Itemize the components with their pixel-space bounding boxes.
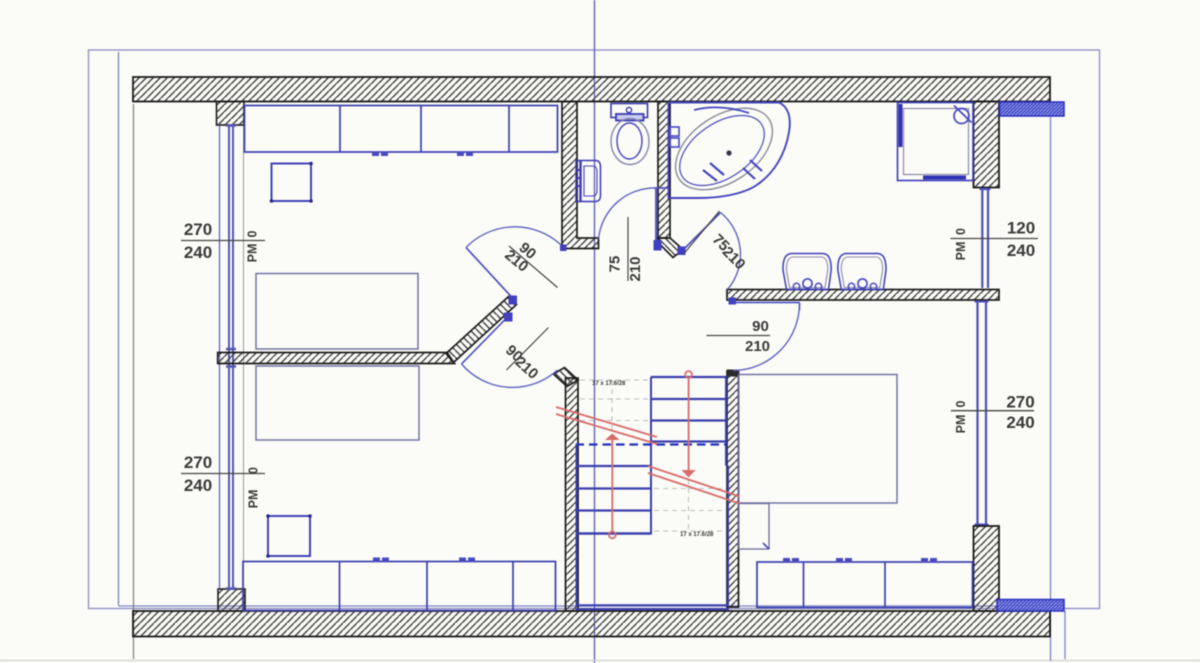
svg-text:270: 270 xyxy=(184,220,212,239)
svg-text:PM: PM xyxy=(954,242,968,261)
svg-text:PM: PM xyxy=(954,415,968,434)
svg-text:90: 90 xyxy=(752,318,769,335)
svg-text:210: 210 xyxy=(745,338,770,355)
svg-text:240: 240 xyxy=(1007,241,1035,260)
svg-text:0: 0 xyxy=(954,228,968,235)
svg-text:17 x 17.6/28: 17 x 17.6/28 xyxy=(680,532,714,538)
svg-text:17 x 17.6/28: 17 x 17.6/28 xyxy=(592,381,626,387)
svg-text:0: 0 xyxy=(954,400,968,407)
svg-text:240: 240 xyxy=(184,243,212,262)
svg-text:0: 0 xyxy=(246,230,260,237)
svg-text:0: 0 xyxy=(247,467,261,474)
svg-text:270: 270 xyxy=(1006,393,1034,412)
svg-text:75: 75 xyxy=(607,256,624,273)
svg-text:270: 270 xyxy=(184,453,212,472)
svg-text:120: 120 xyxy=(1007,219,1035,238)
svg-text:240: 240 xyxy=(1006,413,1034,432)
svg-text:210: 210 xyxy=(627,256,644,281)
svg-text:240: 240 xyxy=(184,476,212,495)
svg-text:PM: PM xyxy=(246,244,260,263)
svg-text:PM: PM xyxy=(247,490,261,509)
